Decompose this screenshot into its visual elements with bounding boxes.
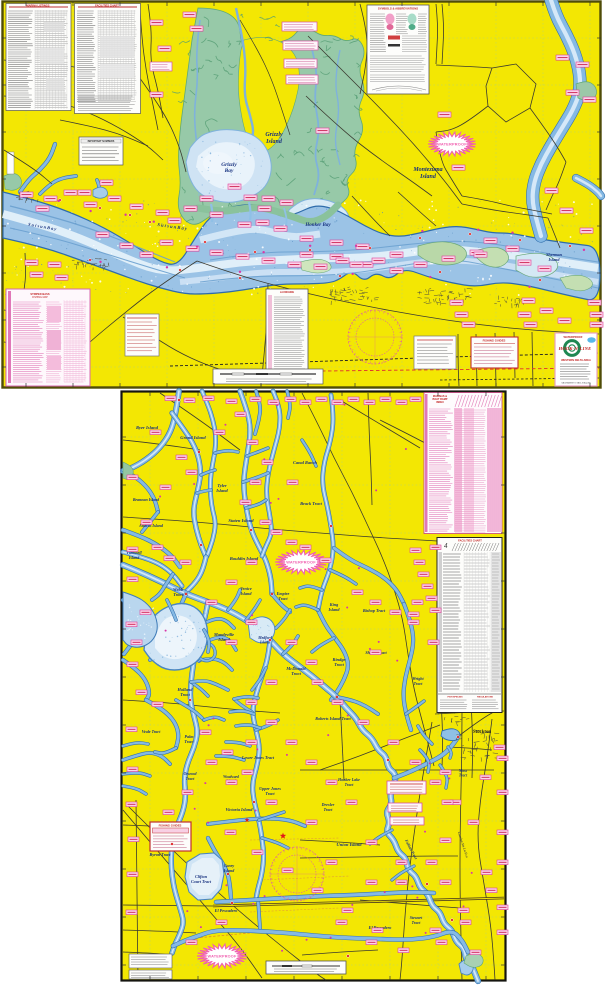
svg-text:WATERPROOF: WATERPROOF — [208, 955, 237, 959]
svg-text:Veale Tract: Veale Tract — [142, 729, 162, 734]
svg-text:Island: Island — [223, 868, 235, 873]
svg-text:Tract: Tract — [180, 692, 190, 697]
svg-text:Grand Island: Grand Island — [180, 435, 206, 440]
svg-text:Tract: Tract — [414, 681, 424, 686]
svg-text:WATERPROOF: WATERPROOF — [563, 335, 582, 339]
svg-text:4: 4 — [444, 542, 448, 550]
svg-text:Tract: Tract — [345, 782, 355, 787]
svg-text:Honker Bay: Honker Bay — [304, 223, 331, 228]
svg-text:Island: Island — [259, 641, 270, 645]
svg-text:Court Tract: Court Tract — [191, 879, 212, 884]
svg-text:WATERPROOF: WATERPROOF — [437, 142, 467, 147]
svg-text:Island: Island — [265, 139, 283, 145]
svg-text:INDEX: INDEX — [436, 401, 444, 404]
svg-text:Staten Island: Staten Island — [228, 518, 254, 523]
svg-text:Byron Tract: Byron Tract — [149, 852, 172, 857]
svg-text:LAUNCHING: LAUNCHING — [280, 291, 294, 294]
svg-text:SYMBOLS & ABBREVIATIONS: SYMBOLS & ABBREVIATIONS — [378, 7, 418, 11]
svg-text:WESTERN DELTA AREA: WESTERN DELTA AREA — [561, 358, 591, 362]
svg-text:Tract: Tract — [324, 807, 334, 812]
svg-text:Bay: Bay — [224, 168, 234, 174]
svg-text:Roberts Island Tract: Roberts Island Tract — [315, 716, 351, 721]
svg-text:HOOK-N-LINE: HOOK-N-LINE — [558, 346, 592, 351]
svg-text:Tract: Tract — [265, 791, 275, 796]
svg-text:Tract: Tract — [459, 774, 468, 778]
svg-text:FACILITIES CHART: FACILITIES CHART — [458, 539, 482, 543]
svg-text:Union Island: Union Island — [336, 842, 362, 847]
svg-text:Island: Island — [328, 607, 341, 612]
svg-text:WATERPROOF: WATERPROOF — [286, 560, 316, 565]
svg-text:Grizzly: Grizzly — [221, 162, 237, 168]
svg-text:MARINA LISTINGS: MARINA LISTINGS — [27, 3, 50, 7]
svg-text:Tract: Tract — [184, 739, 194, 744]
svg-text:Stockton: Stockton — [473, 730, 491, 735]
svg-text:FACILITIES CHART: FACILITIES CHART — [95, 3, 119, 7]
svg-text:Victoria Island: Victoria Island — [226, 807, 254, 812]
svg-text:Brack Tract: Brack Tract — [299, 501, 322, 506]
svg-text:FISHING GUIDES: FISHING GUIDES — [483, 339, 506, 343]
svg-text:Montezuma: Montezuma — [412, 167, 442, 173]
svg-text:Brannan Island: Brannan Island — [132, 497, 160, 502]
svg-text:FISHING MAP: FISHING MAP — [32, 296, 48, 299]
svg-text:Island: Island — [548, 257, 561, 262]
svg-text:Tract: Tract — [173, 592, 183, 597]
svg-text:Tract: Tract — [291, 671, 301, 676]
svg-text:Canal Ranch: Canal Ranch — [293, 460, 318, 465]
svg-text:Woodward: Woodward — [223, 775, 239, 779]
svg-text:Tract: Tract — [278, 596, 288, 601]
svg-text:Grizzly: Grizzly — [265, 132, 283, 138]
svg-text:Tract: Tract — [334, 662, 344, 667]
svg-text:Ryer Island: Ryer Island — [136, 425, 159, 430]
svg-text:Moss: Moss — [458, 769, 468, 773]
svg-text:Island: Island — [128, 555, 140, 560]
svg-text:Island: Island — [215, 488, 228, 493]
svg-text:IMPORTANT NUMBERS: IMPORTANT NUMBERS — [88, 140, 115, 143]
svg-text:REGULATIONS: REGULATIONS — [477, 696, 493, 699]
svg-text:FISH SPECIES: FISH SPECIES — [447, 697, 463, 699]
svg-text:FISHING GUIDES: FISHING GUIDES — [159, 823, 182, 827]
svg-text:SACRAMENTO SAN JOAQUIN: SACRAMENTO SAN JOAQUIN — [561, 382, 591, 385]
svg-text:Tract: Tract — [186, 776, 196, 781]
svg-text:El Pescadero: El Pescadero — [214, 908, 238, 913]
svg-text:Tract: Tract — [412, 920, 422, 925]
svg-text:Bishop Tract: Bishop Tract — [362, 608, 386, 613]
svg-text:Lower Jones Tract: Lower Jones Tract — [241, 755, 275, 760]
svg-text:Island: Island — [240, 591, 253, 596]
svg-text:Island: Island — [419, 174, 437, 180]
